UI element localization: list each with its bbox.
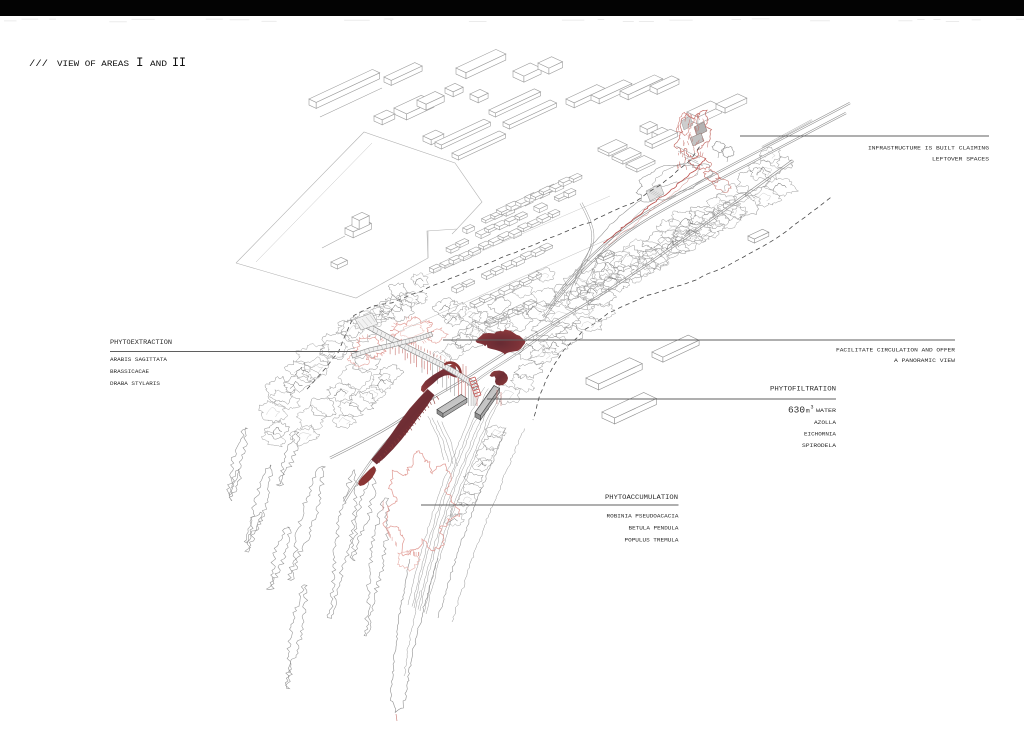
svg-text:///VIEW OF AREASIANDII: ///VIEW OF AREASIANDII [29,56,186,70]
svg-text:PHYTOFILTRATION: PHYTOFILTRATION [770,386,836,394]
svg-text:FACILITATE CIRCULATION AND OFF: FACILITATE CIRCULATION AND OFFERA PANORA… [836,348,956,365]
svg-text:630: 630 [788,406,805,416]
svg-text:AZOLLAEICHORNIASPIRODELA: AZOLLAEICHORNIASPIRODELA [802,420,837,449]
svg-text:PHYTOACCUMULATION: PHYTOACCUMULATION [605,494,678,502]
svg-text:m: m [806,408,810,415]
svg-text:3: 3 [811,405,814,411]
svg-text:ARABIS SAGITTATABRASSICACAEDRA: ARABIS SAGITTATABRASSICACAEDRABA STYLARI… [110,357,168,387]
svg-text:INFRASTRUCTURE IS BUILT CLAIMI: INFRASTRUCTURE IS BUILT CLAIMINGLEFTOVER… [868,146,989,163]
svg-text:WATER: WATER [816,408,836,414]
svg-text:ROBINIA PSEUDOACACIABETULA PEN: ROBINIA PSEUDOACACIABETULA PENDULAPOPULU… [607,514,680,544]
svg-text:PHYTOEXTRACTION: PHYTOEXTRACTION [110,339,172,347]
